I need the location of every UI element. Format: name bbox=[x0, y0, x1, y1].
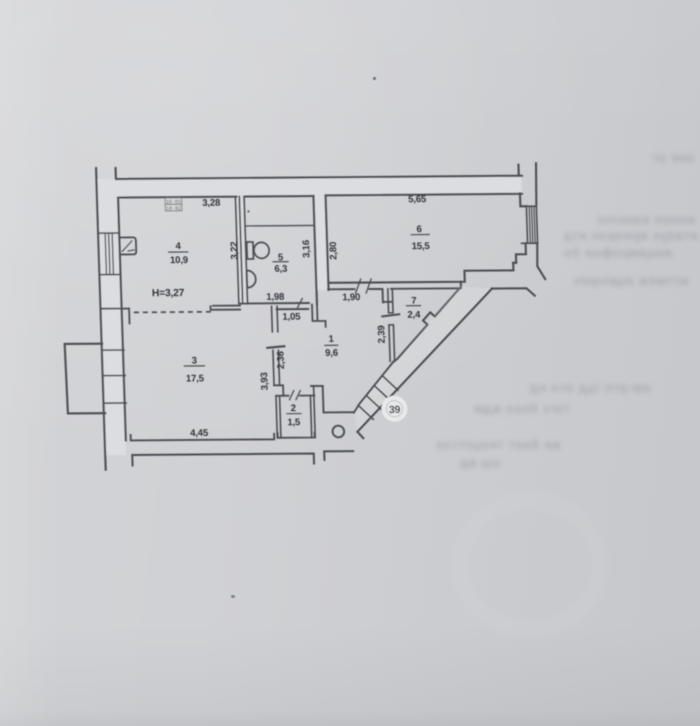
svg-text:1,98: 1,98 bbox=[266, 292, 285, 303]
svg-text:1,90: 1,90 bbox=[342, 292, 360, 303]
svg-text:1,05: 1,05 bbox=[282, 312, 301, 323]
svg-text:39: 39 bbox=[389, 404, 401, 416]
svg-text:2,4: 2,4 bbox=[407, 310, 421, 321]
svg-text:3,28: 3,28 bbox=[202, 198, 221, 209]
svg-text:4,45: 4,45 bbox=[190, 428, 209, 439]
svg-text:17,5: 17,5 bbox=[186, 373, 205, 384]
svg-text:3,16: 3,16 bbox=[301, 240, 313, 258]
svg-text:5,65: 5,65 bbox=[408, 194, 427, 205]
svg-text:15,5: 15,5 bbox=[412, 241, 431, 252]
svg-text:4: 4 bbox=[175, 241, 181, 252]
svg-text:H=3,27: H=3,27 bbox=[152, 288, 185, 299]
svg-text:2: 2 bbox=[291, 403, 296, 414]
svg-text:3,93: 3,93 bbox=[259, 372, 271, 390]
svg-text:6: 6 bbox=[416, 224, 421, 235]
svg-text:2,80: 2,80 bbox=[328, 242, 340, 260]
svg-text:10,9: 10,9 bbox=[170, 255, 188, 266]
svg-text:3: 3 bbox=[192, 355, 197, 366]
svg-text:2,39: 2,39 bbox=[376, 325, 388, 343]
svg-text:3,22: 3,22 bbox=[229, 242, 241, 260]
svg-text:1: 1 bbox=[328, 334, 334, 345]
svg-text:9,6: 9,6 bbox=[325, 348, 338, 359]
svg-text:10-02: 10-02 bbox=[166, 206, 181, 212]
svg-text:10-05: 10-05 bbox=[166, 199, 181, 205]
svg-text:1,5: 1,5 bbox=[287, 417, 301, 428]
svg-text:6,3: 6,3 bbox=[274, 264, 287, 275]
svg-text:2,36: 2,36 bbox=[275, 351, 287, 369]
svg-text:7: 7 bbox=[411, 296, 416, 307]
